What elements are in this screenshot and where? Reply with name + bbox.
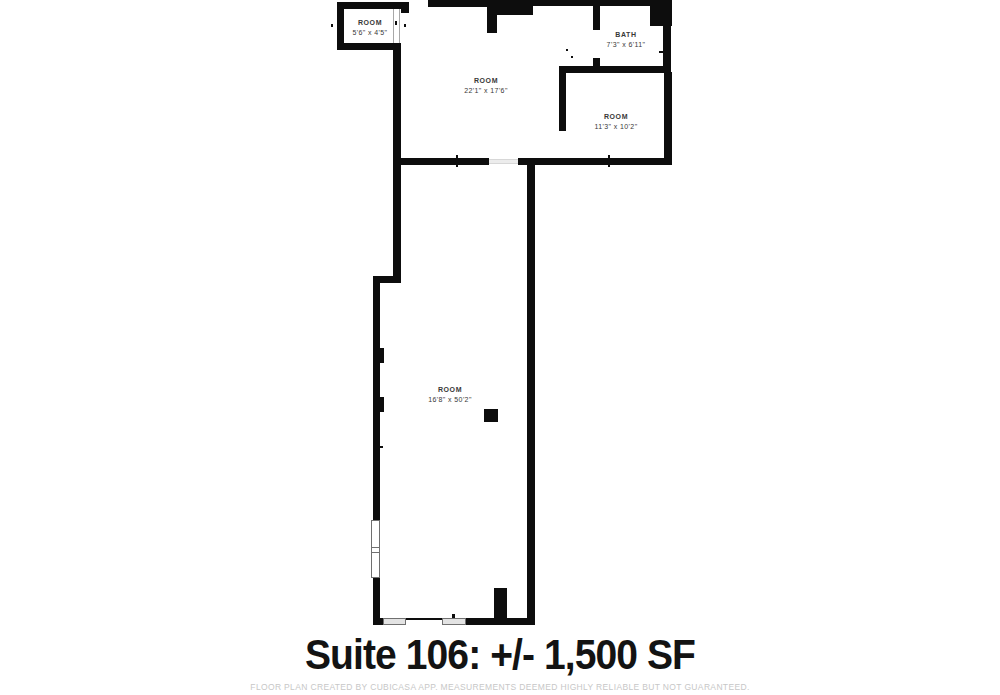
measurement-tick — [571, 56, 573, 58]
wall-topsection-bottom-left — [393, 158, 489, 165]
room-dimensions: 11'3" x 10'2" — [561, 122, 671, 132]
window-mullion — [372, 547, 379, 548]
room-name: ROOM — [431, 76, 541, 86]
wall-bottom-corner — [373, 618, 383, 625]
room-dimensions: 22'1" x 17'6" — [431, 86, 541, 96]
wall-bath-bottom — [559, 66, 671, 73]
room-label-long: ROOM 16'8" x 50'2" — [395, 385, 505, 405]
wall-smallroom-top-corner — [401, 2, 409, 13]
wall-smallroom-bottom — [337, 43, 401, 50]
room-label-bath: BATH 7'3" x 6'11" — [571, 30, 681, 50]
room-name: ROOM — [395, 385, 505, 395]
suite-title: Suite 106: +/- 1,500 SF — [35, 631, 965, 679]
room-name: ROOM — [561, 112, 671, 122]
window-bottom-b — [442, 618, 466, 625]
measurement-tick — [659, 51, 666, 53]
measurement-tick — [527, 446, 532, 448]
column — [484, 409, 498, 422]
wall-pilaster — [378, 348, 384, 363]
room-dimensions: 5'6" x 4'5" — [315, 28, 425, 38]
window-bottom-a — [383, 618, 406, 625]
wall-longroom-right — [527, 165, 535, 625]
room-dimensions: 7'3" x 6'11" — [571, 40, 681, 50]
wall-smallroom-top — [337, 2, 403, 9]
room-label-right: ROOM 11'3" x 10'2" — [561, 112, 671, 132]
wall-topright-corner — [650, 0, 672, 26]
measurement-tick — [608, 155, 610, 167]
measurement-tick — [566, 49, 568, 51]
measurement-tick — [378, 446, 383, 448]
room-name: BATH — [571, 30, 681, 40]
wall-left-upper — [393, 43, 401, 283]
room-dimensions: 16'8" x 50'2" — [395, 395, 505, 405]
wall-bath-left-stub — [593, 58, 600, 66]
disclaimer-text: FLOOR PLAN CREATED BY CUBICASA APP. MEAS… — [0, 682, 1000, 692]
door-opening — [489, 159, 518, 164]
room-name: ROOM — [315, 18, 425, 28]
wall-top-thick-block — [487, 0, 533, 15]
window-mullion — [372, 552, 379, 553]
measurement-tick — [456, 155, 458, 167]
wall-pilaster — [378, 397, 384, 412]
wall-stub-top — [487, 14, 497, 33]
window-left — [371, 520, 380, 578]
measurement-tick — [452, 614, 455, 618]
wall-bath-left — [593, 0, 600, 30]
wall-top-main — [428, 0, 488, 7]
floorplan-page: ROOM 5'6" x 4'5" ROOM 22'1" x 17'6" BATH… — [0, 0, 1000, 695]
wall-topsection-bottom-right — [518, 158, 672, 165]
wall-stub-bottom — [494, 588, 507, 625]
wall-top-thin — [533, 0, 650, 6]
room-label-top-left: ROOM 5'6" x 4'5" — [315, 18, 425, 38]
room-label-main: ROOM 22'1" x 17'6" — [431, 76, 541, 96]
opening-threshold-line — [406, 618, 442, 620]
